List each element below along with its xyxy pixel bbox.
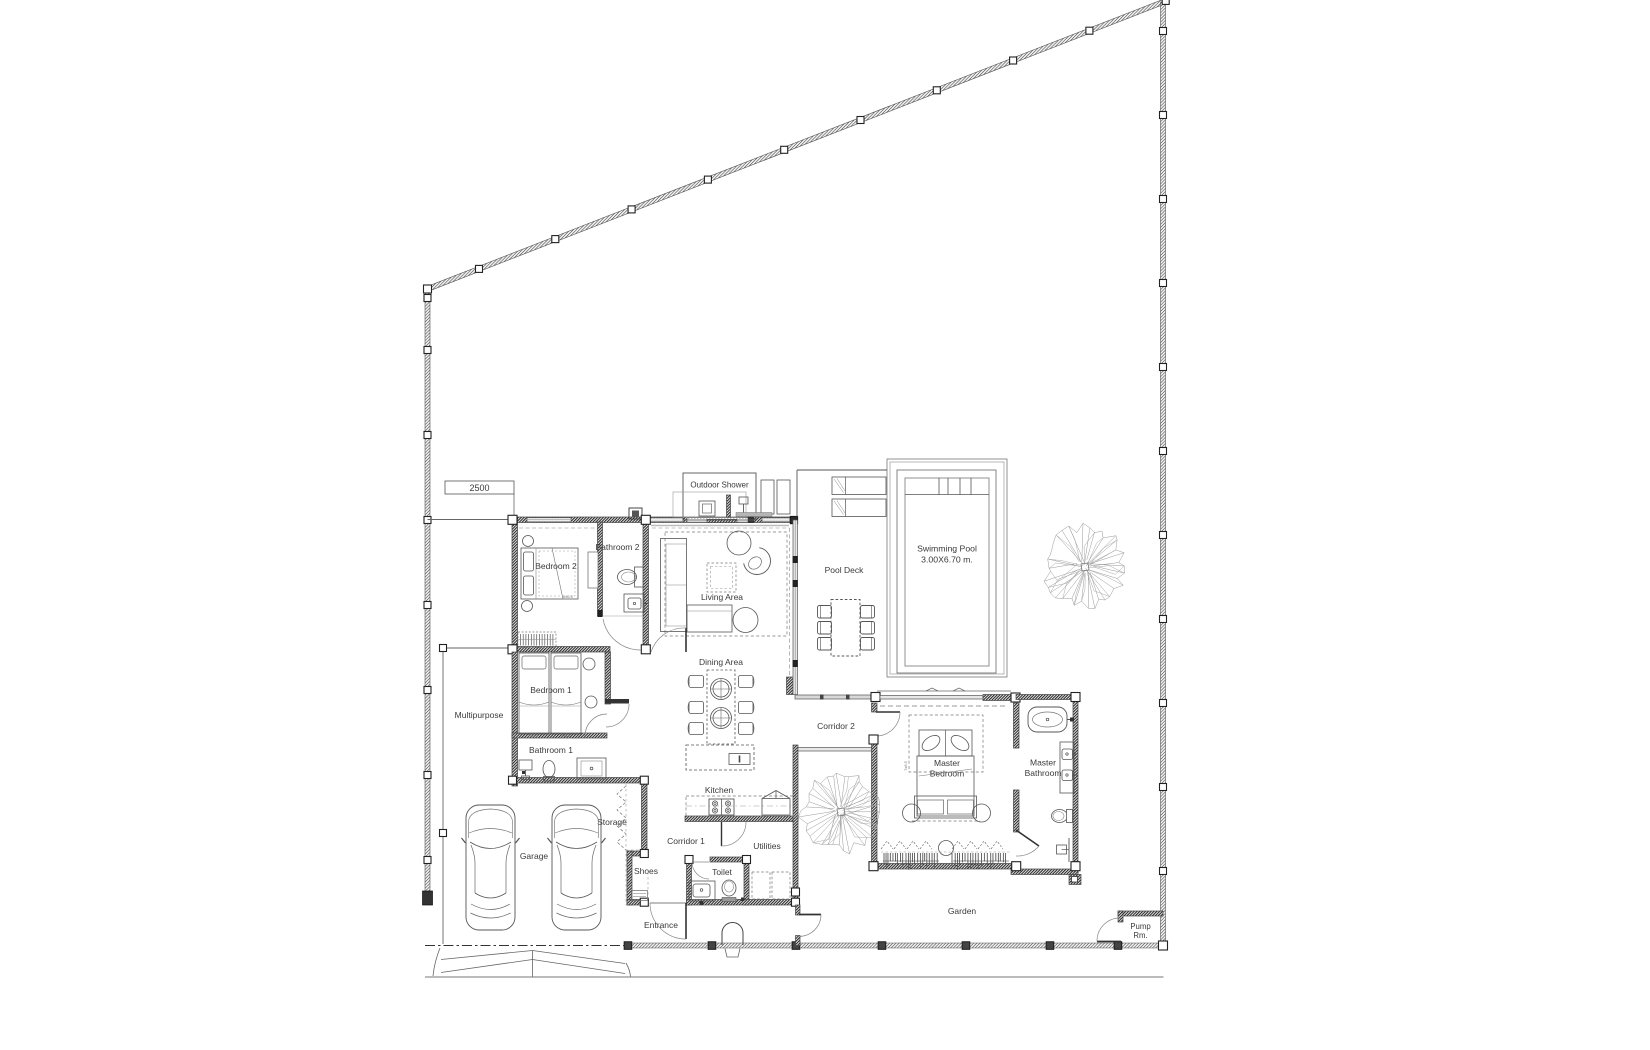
svg-text:Corridor 1: Corridor 1: [667, 836, 705, 846]
svg-text:Pool Deck: Pool Deck: [825, 565, 864, 575]
svg-text:7x6.5: 7x6.5: [903, 760, 908, 771]
svg-text:Master: Master: [1030, 758, 1056, 768]
svg-text:Rm.: Rm.: [1133, 931, 1147, 940]
svg-text:Outdoor Shower: Outdoor Shower: [690, 481, 749, 490]
svg-text:Master: Master: [934, 758, 960, 768]
svg-text:Shoes: Shoes: [634, 866, 658, 876]
svg-text:Entrance: Entrance: [644, 920, 678, 930]
svg-text:Bathroom: Bathroom: [1025, 768, 1062, 778]
svg-text:6x6.5: 6x6.5: [563, 594, 574, 599]
svg-text:Garage: Garage: [520, 851, 549, 861]
svg-text:Kitchen: Kitchen: [705, 785, 734, 795]
svg-text:3'x6.5': 3'x6.5': [561, 734, 572, 738]
svg-text:Multipurpose: Multipurpose: [455, 710, 504, 720]
svg-text:Swimming Pool: Swimming Pool: [917, 544, 977, 554]
svg-text:Bedroom: Bedroom: [930, 769, 965, 779]
svg-text:2500: 2500: [469, 483, 489, 493]
svg-text:Toilet: Toilet: [712, 867, 732, 877]
svg-text:Corridor 2: Corridor 2: [817, 721, 855, 731]
svg-text:Living Area: Living Area: [701, 592, 743, 602]
svg-text:Storage: Storage: [597, 817, 627, 827]
svg-text:Dining Area: Dining Area: [699, 657, 743, 667]
svg-text:3'x6.5': 3'x6.5': [528, 734, 539, 738]
svg-text:Pump: Pump: [1130, 922, 1151, 931]
svg-text:Utilities: Utilities: [753, 841, 780, 851]
svg-text:Garden: Garden: [948, 906, 977, 916]
svg-text:Bathroom 1: Bathroom 1: [529, 745, 573, 755]
svg-text:3.00X6.70 m.: 3.00X6.70 m.: [921, 555, 973, 565]
svg-text:Bathroom 2: Bathroom 2: [596, 542, 640, 552]
